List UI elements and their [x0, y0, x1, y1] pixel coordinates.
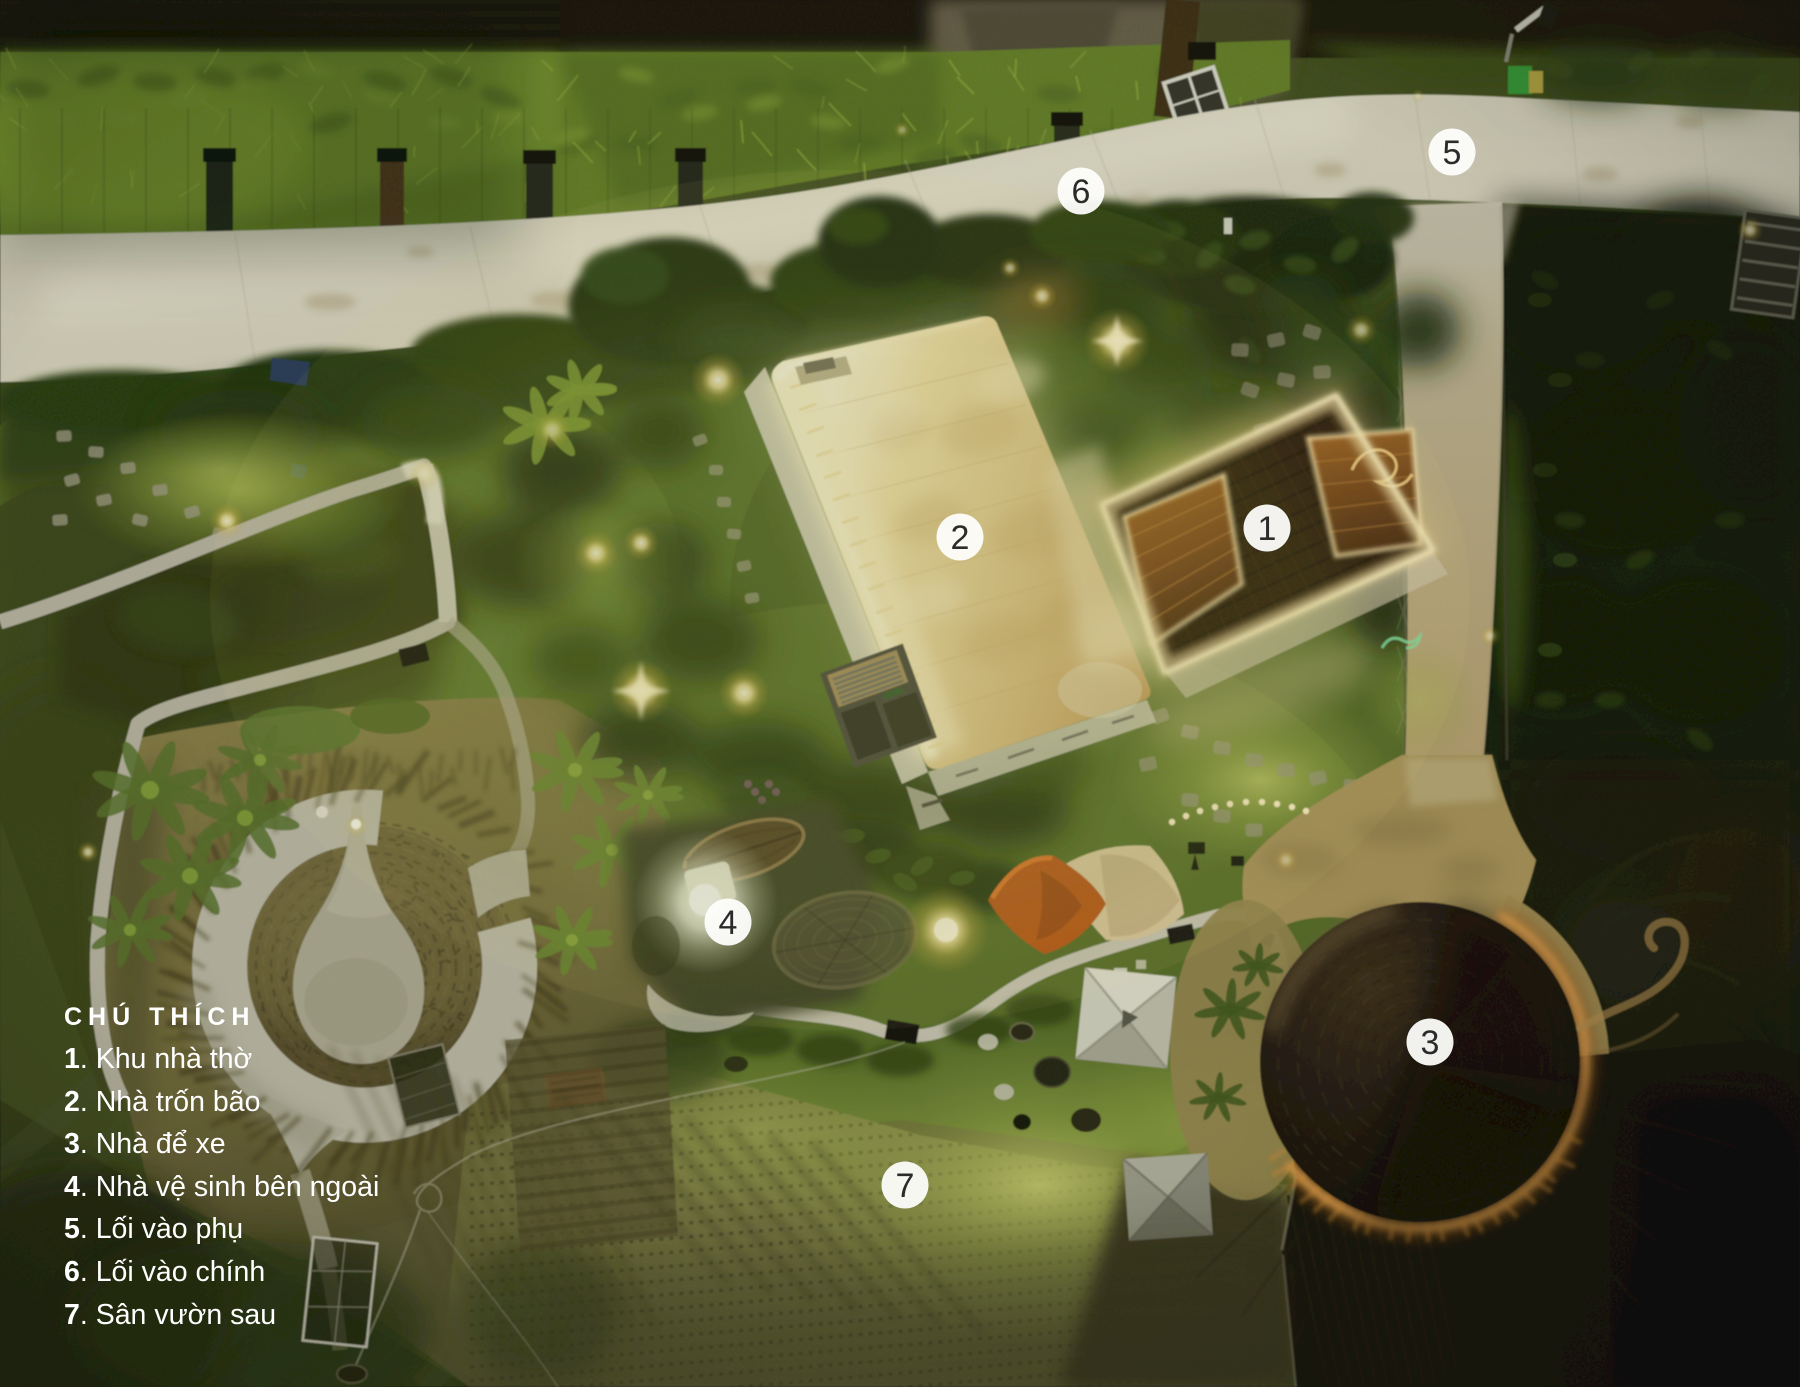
svg-text:4. Nhà vệ sinh bên ngoài: 4. Nhà vệ sinh bên ngoài: [64, 1171, 379, 1203]
svg-text:2. Nhà trốn bão: 2. Nhà trốn bão: [64, 1086, 260, 1118]
svg-text:7: 7: [896, 1167, 915, 1205]
svg-text:5. Lối vào phụ: 5. Lối vào phụ: [64, 1213, 243, 1245]
svg-text:3. Nhà để xe: 3. Nhà để xe: [64, 1128, 226, 1160]
svg-text:5: 5: [1443, 134, 1462, 172]
svg-text:6. Lối vào chính: 6. Lối vào chính: [64, 1256, 265, 1288]
svg-text:CHÚ THÍCH: CHÚ THÍCH: [64, 1001, 256, 1031]
svg-text:7. Sân vườn sau: 7. Sân vườn sau: [64, 1299, 276, 1331]
svg-text:1: 1: [1258, 510, 1277, 548]
svg-text:3: 3: [1421, 1024, 1440, 1062]
svg-text:2: 2: [951, 519, 970, 557]
svg-text:4: 4: [719, 904, 738, 942]
svg-text:6: 6: [1072, 173, 1091, 211]
svg-text:1. Khu nhà thờ: 1. Khu nhà thờ: [64, 1043, 252, 1075]
